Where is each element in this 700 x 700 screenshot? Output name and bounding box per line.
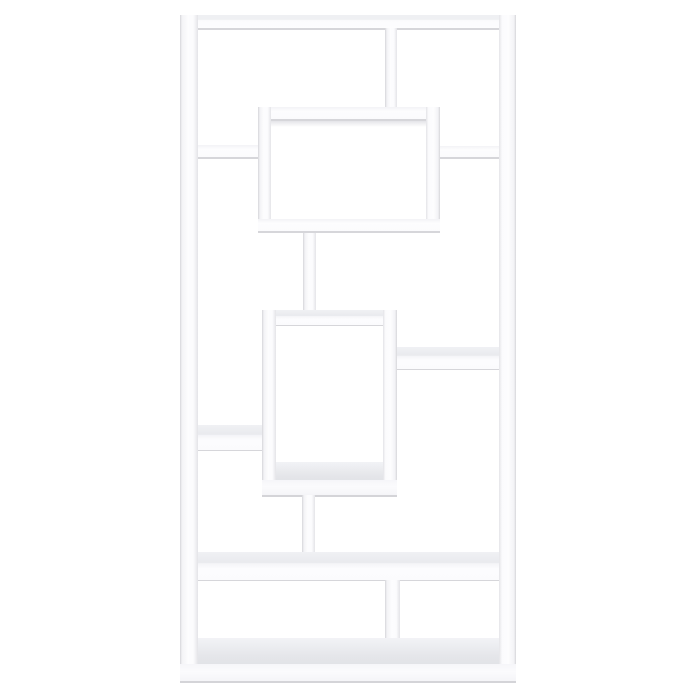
upper-connector-post	[303, 233, 316, 310]
base-floor-surface	[198, 638, 499, 664]
full-width-shelf	[198, 552, 499, 581]
upper-vertical-divider	[385, 28, 397, 108]
middle-cube-bottom	[262, 480, 397, 497]
base-panel	[180, 664, 516, 683]
middle-right-shelf	[397, 347, 499, 370]
upper-right-shelf	[440, 146, 499, 159]
bookcase-product-photo	[0, 0, 700, 700]
upper-cube-bottom	[258, 219, 440, 233]
upper-left-shelf	[198, 145, 258, 159]
middle-cube-right-wall	[383, 310, 397, 497]
middle-cube-floor	[276, 462, 383, 481]
middle-cube-left-wall	[262, 310, 276, 497]
upper-cube-left-wall	[258, 107, 271, 233]
lower-connector-post	[302, 495, 315, 553]
bookcase-top-panel	[180, 15, 516, 30]
middle-cube-top	[262, 310, 397, 326]
upper-cube-right-wall	[426, 107, 440, 233]
bookcase-left-side-panel	[180, 15, 198, 683]
lower-left-shelf	[198, 425, 262, 451]
upper-cube-inner-shadow	[271, 121, 426, 127]
upper-cube-top	[258, 107, 440, 121]
bookcase-right-side-panel	[499, 15, 516, 683]
